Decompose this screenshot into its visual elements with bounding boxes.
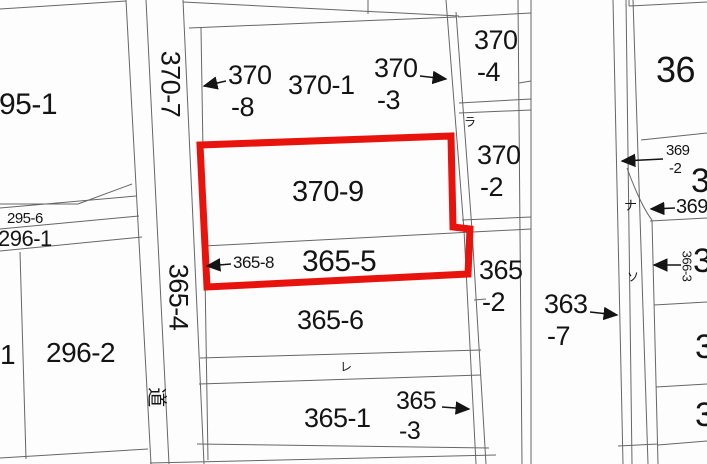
parcel-label-296-1: 296-1 [0,228,52,250]
parcel-label-line: 370 [477,140,521,172]
leader-arrow-369 [651,208,675,209]
parcel-label-296-2: 296-2 [46,339,115,367]
parcel-label-1-edge: 1 [0,341,15,369]
kana-marker-so: ソ [627,271,639,283]
parcel-label-366-3: 366-3 [681,251,694,282]
parcel-label-3-edge-c: 3 [695,330,707,364]
parcel-label-3-edge-a: 3 [691,164,707,198]
kana-marker-na: ナ [624,199,637,212]
parcel-label-line: 370 [374,53,418,85]
leader-arrow-365-8 [207,264,231,266]
parcel-label-line: 369 [666,142,690,160]
parcel-label-369-edge: 369 [676,197,707,217]
leader-arrow-370-3 [420,76,446,79]
parcel-label-370-8: 370 -8 [228,60,272,124]
kana-marker-ra: ラ [464,116,476,128]
leader-arrow-370-8 [204,81,226,86]
parcel-label-295-1: 95-1 [0,90,57,120]
parcel-label-365-1: 365-1 [304,405,371,432]
kana-marker-re: レ [340,361,352,373]
parcel-label-line: -8 [231,92,272,124]
parcel-label-365-6: 365-6 [297,307,364,334]
parcel-label-line: -4 [477,57,518,89]
road-label-michi: 道 [146,387,166,407]
parcel-label-3-edge-b: 3 [693,244,707,278]
parcel-label-line: 370 [228,60,272,92]
parcel-label-365-8: 365-8 [233,254,274,271]
parcel-label-370-3: 370 -3 [374,53,418,117]
parcel-label-line: -7 [547,321,588,353]
parcel-label-363-7: 363 -7 [544,289,588,353]
parcel-label-line: -3 [377,85,418,117]
leader-arrow-365-3 [442,407,469,409]
parcel-label-365-2: 365 -2 [479,255,523,319]
leader-arrow-363-7 [590,312,617,315]
parcel-label-line: 365 [396,387,436,417]
parcel-label-line: -2 [480,172,521,204]
parcel-label-line: 365 [479,255,523,287]
parcel-label-365-3: 365 -3 [396,387,436,446]
parcel-label-line: -3 [399,417,436,447]
parcel-label-3-edge-d: 3 [695,398,707,432]
cadastral-map-canvas[interactable]: 95-1 370-1 370-9 365-5 365-8 365-6 365-1… [0,0,707,464]
parcel-label-369-2: 369 -2 [666,142,690,177]
road-label-365-4: 365-4 [165,264,192,331]
parcel-label-370-9: 370-9 [292,178,364,207]
parcel-label-line: 363 [544,289,588,321]
road-label-370-7: 370-7 [157,51,184,118]
parcel-label-line: 370 [474,25,518,57]
parcel-label-line: -2 [482,287,523,319]
parcel-label-370-2: 370 -2 [477,140,521,204]
parcel-label-370-4: 370 -4 [474,25,518,89]
parcel-label-295-6: 295-6 [7,211,43,226]
parcel-label-365-5: 365-5 [302,247,376,277]
parcel-label-line: -2 [669,160,690,178]
parcel-label-370-1: 370-1 [288,72,355,99]
parcel-label-36-edge: 36 [656,52,695,88]
